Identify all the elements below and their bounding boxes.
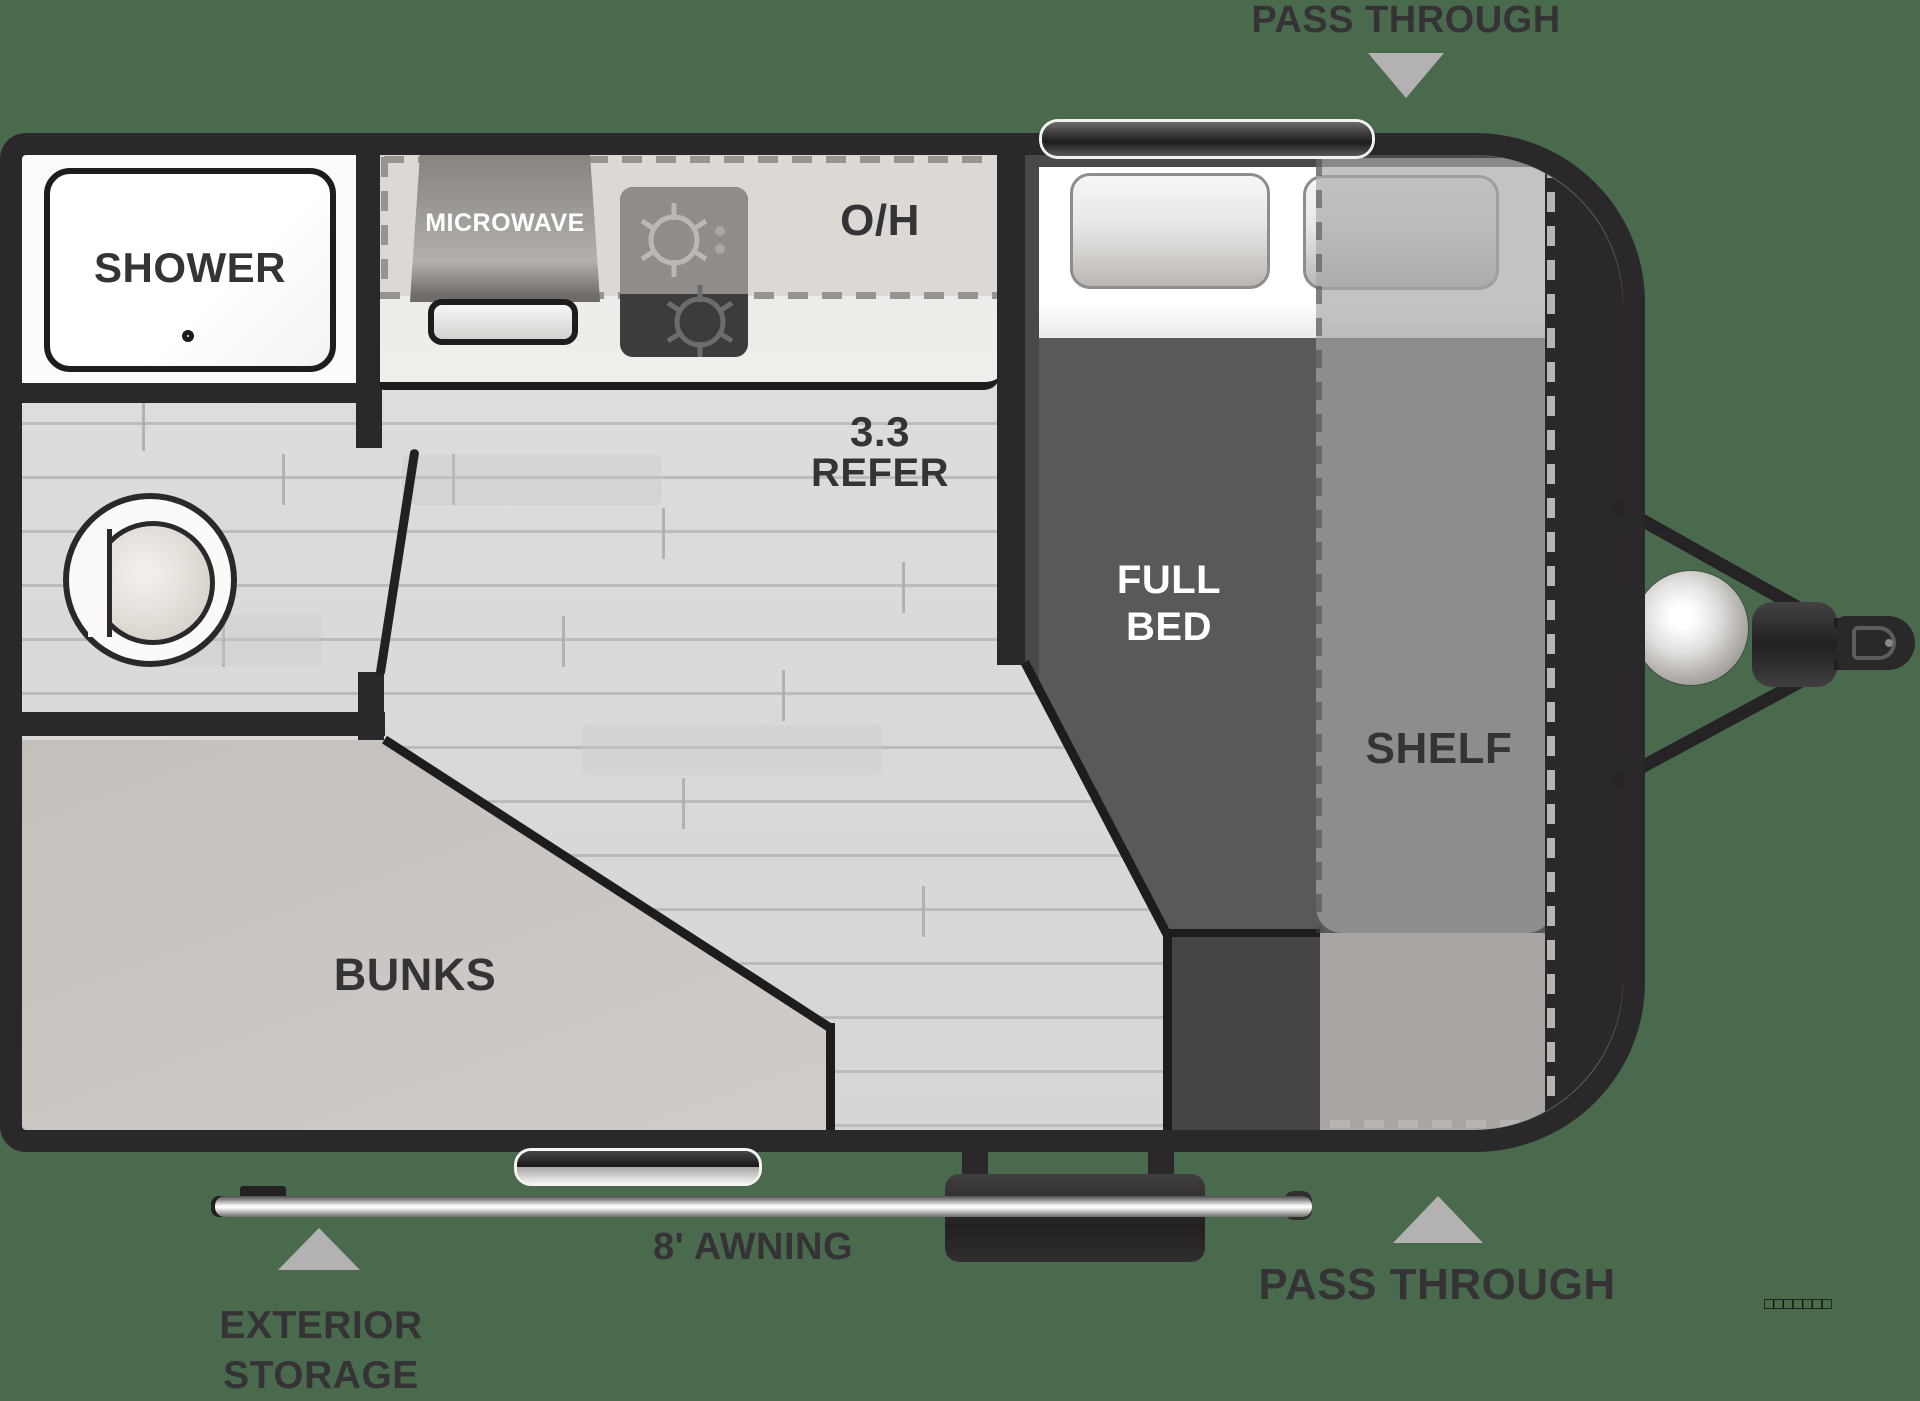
bathroom-wall-right bbox=[356, 155, 382, 448]
hitch-ball-icon bbox=[1885, 639, 1893, 647]
microwave-label: MICROWAVE bbox=[425, 211, 585, 236]
shelf-label: SHELF bbox=[1366, 727, 1513, 771]
floor-plank-joint bbox=[782, 670, 785, 721]
underbed-storage bbox=[1168, 933, 1320, 1130]
watermark-glyphs: □□□□□□□ bbox=[1764, 1296, 1832, 1314]
cabinet-dash-left bbox=[381, 157, 388, 295]
floor-plank-joint bbox=[282, 454, 285, 505]
shelf-overlay bbox=[1316, 158, 1553, 933]
floorplan-canvas: PASS THROUGH SHOWER bbox=[0, 0, 1920, 1401]
bedroom-wall-left bbox=[997, 155, 1025, 665]
bunks-label: BUNKS bbox=[334, 952, 497, 997]
pillow-icon bbox=[1070, 173, 1270, 289]
floor-plank-joint bbox=[682, 778, 685, 829]
floor-shade-patch bbox=[402, 455, 662, 505]
pass-through-bottom-arrow-icon bbox=[1393, 1196, 1483, 1243]
bathroom-wall-bottom bbox=[22, 712, 385, 736]
shower-label: SHOWER bbox=[94, 247, 286, 289]
hitch-coupler-icon bbox=[1752, 602, 1837, 687]
microwave-icon: MICROWAVE bbox=[410, 155, 600, 302]
entry-door-lower bbox=[517, 1167, 759, 1183]
step-mount-right bbox=[1148, 1146, 1174, 1176]
stove-knob-icon bbox=[715, 244, 725, 254]
floor-plank-joint bbox=[142, 400, 145, 451]
hitch-tongue-tip bbox=[1837, 616, 1915, 670]
propane-tank-icon bbox=[1634, 571, 1748, 685]
floor-plank-joint bbox=[662, 508, 665, 559]
floor-plank-joint bbox=[922, 886, 925, 937]
pass-through-top-label: PASS THROUGH bbox=[1251, 1, 1560, 39]
bathroom-door-swing bbox=[376, 449, 420, 677]
trailer-interior-floor: SHOWER MICROWAVE bbox=[22, 155, 1623, 1130]
refer-label-line2: REFER bbox=[811, 453, 949, 493]
floor-shade-patch bbox=[582, 725, 882, 775]
entry-door-upper bbox=[517, 1151, 759, 1167]
stove-knob-icon bbox=[715, 226, 725, 236]
exterior-storage-label-line2: STORAGE bbox=[223, 1356, 419, 1395]
step-mount-left bbox=[962, 1146, 988, 1176]
pass-through-storage-area bbox=[1320, 933, 1545, 1130]
awning-rail-icon bbox=[215, 1196, 1312, 1217]
floor-plank-joint bbox=[902, 562, 905, 613]
pass-through-bottom-label: PASS THROUGH bbox=[1258, 1263, 1615, 1307]
front-wall-band bbox=[1545, 155, 1623, 1130]
refer-label-line1: 3.3 bbox=[850, 411, 910, 453]
shelf-dash-left bbox=[1316, 158, 1322, 933]
underbed-edge-top bbox=[1168, 929, 1320, 937]
shower-wall-bottom bbox=[22, 383, 382, 403]
full-bed-label: FULL BED bbox=[1117, 557, 1221, 651]
shower-drain-icon bbox=[182, 330, 194, 342]
pass-through-top-arrow-icon bbox=[1368, 53, 1444, 98]
awning-label: 8' AWNING bbox=[653, 1228, 853, 1266]
overhead-cabinet-label: O/H bbox=[840, 199, 920, 243]
bunks-edge-right bbox=[826, 1023, 835, 1130]
microwave-handle bbox=[428, 299, 578, 345]
stove-icon bbox=[620, 187, 748, 357]
bed-edge-vertical bbox=[1163, 935, 1172, 1130]
pass-through-dash-bottom bbox=[1330, 1120, 1540, 1128]
pass-through-dash-right bbox=[1547, 158, 1555, 1128]
floor-plank-joint bbox=[562, 616, 565, 667]
exterior-storage-label-line1: EXTERIOR bbox=[219, 1306, 422, 1345]
entry-step-icon bbox=[945, 1174, 1205, 1262]
full-bed-label-line1: FULL bbox=[1117, 557, 1221, 604]
toilet-tank-edge bbox=[88, 529, 112, 637]
front-window-icon bbox=[1042, 122, 1372, 156]
entry-door-icon bbox=[517, 1151, 759, 1183]
full-bed-label-line2: BED bbox=[1117, 604, 1221, 651]
exterior-storage-arrow-icon bbox=[278, 1228, 360, 1270]
